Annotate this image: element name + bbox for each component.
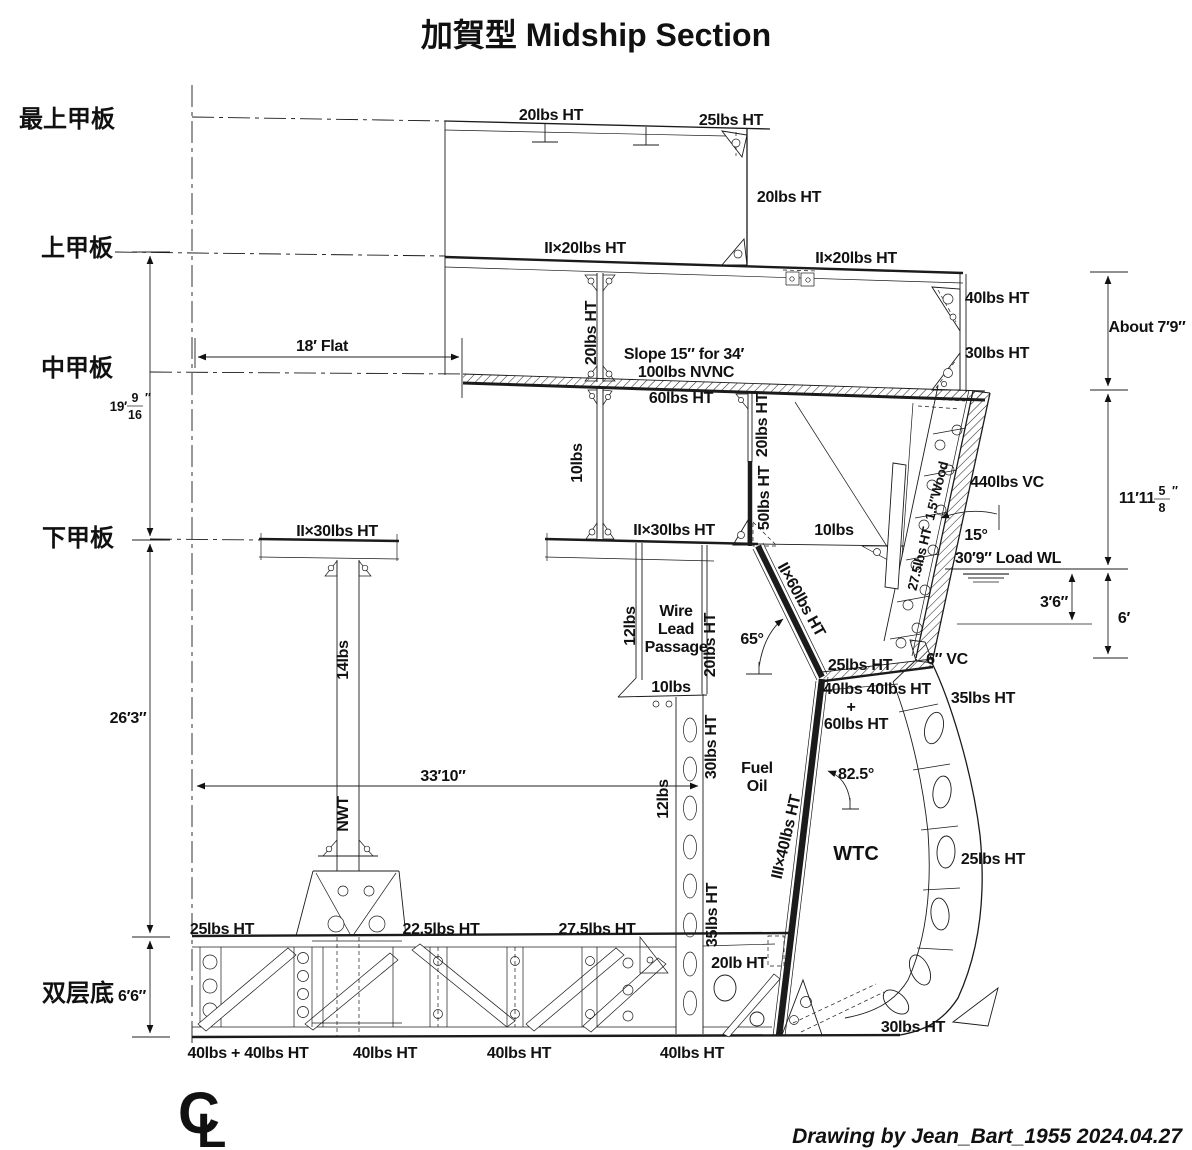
plate-hold-30: 30lbs HT xyxy=(703,714,720,779)
compartment-wire-2: Lead xyxy=(658,621,694,638)
plate-ib-225: 22.5lbs HT xyxy=(402,921,480,938)
plate-vc6: 6″ VC xyxy=(926,651,968,668)
centerline-symbol-l: L xyxy=(197,1105,226,1150)
svg-text:5: 5 xyxy=(1159,484,1166,498)
plate-ob-4040: 40lbs + 40lbs HT xyxy=(187,1045,309,1062)
plate-wire-20: 20lbs HT xyxy=(702,612,719,677)
plate-hold-12: 12lbs xyxy=(655,779,672,819)
plate-armor-backing: 60lbs HT xyxy=(649,390,714,407)
svg-text:11′11: 11′11 xyxy=(1119,490,1156,507)
plate-armor-deck: 100lbs NVNC xyxy=(638,364,735,381)
compartment-wire-1: Wire xyxy=(659,603,693,620)
plate-upper-deck-right: II×20lbs HT xyxy=(815,250,897,267)
plate-shell-275: 27.5lbs HT xyxy=(905,525,935,592)
page-title: 加賀型 Midship Section xyxy=(421,17,771,53)
deck-label-lower: 下甲板 xyxy=(42,525,115,552)
centerline: C L xyxy=(178,85,226,1150)
double-bottom xyxy=(192,933,900,1037)
plate-hold-35: 35lbs HT xyxy=(704,882,721,947)
dim-19-9-16: 19′ 9 16 ″ xyxy=(110,391,151,422)
plate-wall-50: 50lbs HT xyxy=(756,465,773,530)
angle-15: 15° xyxy=(964,527,987,544)
plate-wall-20: 20lbs HT xyxy=(754,392,771,457)
plate-top-deck: 20lbs HT xyxy=(519,107,584,124)
plate-slope-4040: 40lbs 40lbs HT xyxy=(823,681,931,698)
svg-text:″: ″ xyxy=(145,391,151,405)
svg-text:19′: 19′ xyxy=(110,399,127,414)
plate-top-deck-end: 25lbs HT xyxy=(699,112,764,129)
deck-label-double-bottom: 双层底 xyxy=(42,979,114,1007)
plate-shell-35: 35lbs HT xyxy=(951,690,1016,707)
plate-pillar-20: 20lbs HT xyxy=(583,300,600,365)
dim-6: 6′ xyxy=(1118,610,1131,627)
note-slope: Slope 15″ for 34′ xyxy=(624,346,745,363)
dim-26-3: 26′3″ xyxy=(110,710,147,727)
lower-deck-structure xyxy=(150,533,904,561)
plate-ledge-20: 20lb HT xyxy=(711,955,767,972)
svg-text:8: 8 xyxy=(1159,501,1166,515)
dim-about-7-9: About 7′9″ xyxy=(1109,319,1187,336)
midship-section-drawing: C L xyxy=(0,0,1192,1150)
deck-label-top: 最上甲板 xyxy=(19,106,116,133)
angle-65: 65° xyxy=(740,631,763,648)
plate-plus: + xyxy=(846,699,855,716)
plate-shelf-10: 10lbs xyxy=(814,522,854,539)
torpedo-bulkheads xyxy=(753,543,933,1036)
plate-belt: 440lbs VC xyxy=(970,474,1045,491)
hold-pillar xyxy=(296,560,406,936)
dim-load-wl: 30′9″ Load WL xyxy=(955,550,1062,567)
plate-ib-275: 27.5lbs HT xyxy=(558,921,636,938)
drawing-canvas: C L xyxy=(0,0,1192,1150)
angle-82-5: 82.5° xyxy=(838,766,874,783)
svg-text:16: 16 xyxy=(128,408,142,422)
dim-11-11-5-8: 11′11 5 8 ″ xyxy=(1119,484,1178,515)
plate-ob-40a: 40lbs HT xyxy=(353,1045,418,1062)
compartment-wtc: WTC xyxy=(833,843,879,865)
plate-deckhouse-side: 20lbs HT xyxy=(757,189,822,206)
dim-18-flat: 18′ Flat xyxy=(296,338,349,355)
plate-ob-40c: 40lbs HT xyxy=(660,1045,725,1062)
plate-slope-60: 60lbs HT xyxy=(824,716,889,733)
load-waterline xyxy=(945,569,1128,624)
credit-line: Drawing by Jean_Bart_1955 2024.04.27 xyxy=(792,1125,1183,1148)
plate-ib-25: 25lbs HT xyxy=(190,921,255,938)
plate-lower-deck-left: II×30lbs HT xyxy=(296,523,378,540)
plate-wire-12: 12lbs xyxy=(622,606,639,646)
svg-text:″: ″ xyxy=(1172,484,1178,498)
plate-side-40: 40lbs HT xyxy=(965,290,1030,307)
top-deck-structure xyxy=(192,117,770,266)
plate-ob-40b: 40lbs HT xyxy=(487,1045,552,1062)
plate-strut-10: 10lbs xyxy=(569,443,586,483)
dim-33-10: 33′10″ xyxy=(420,768,466,785)
compartment-fuel-2: Oil xyxy=(747,778,767,795)
deck-label-upper: 上甲板 xyxy=(41,235,114,262)
plate-lower-deck-mid: II×30lbs HT xyxy=(633,522,715,539)
plate-slope-25: 25lbs HT xyxy=(828,657,893,674)
plate-nwt: NWT xyxy=(335,796,352,832)
plate-side-30: 30lbs HT xyxy=(965,345,1030,362)
plate-wire-floor-10: 10lbs xyxy=(651,679,691,696)
dim-3-6: 3′6″ xyxy=(1040,594,1069,611)
plate-pillar-14: 14lbs xyxy=(335,640,352,680)
compartment-wire-3: Passage xyxy=(645,639,708,656)
dim-6-6: 6′6″ xyxy=(118,988,147,1005)
plate-shell-25: 25lbs HT xyxy=(961,851,1026,868)
plate-upper-deck-left: II×20lbs HT xyxy=(544,240,626,257)
compartment-fuel-1: Fuel xyxy=(741,760,773,777)
deck-label-middle: 中甲板 xyxy=(41,355,114,382)
plate-bilge-30: 30lbs HT xyxy=(881,1019,946,1036)
svg-text:9: 9 xyxy=(132,391,139,405)
armor-deck-structure xyxy=(150,372,985,546)
